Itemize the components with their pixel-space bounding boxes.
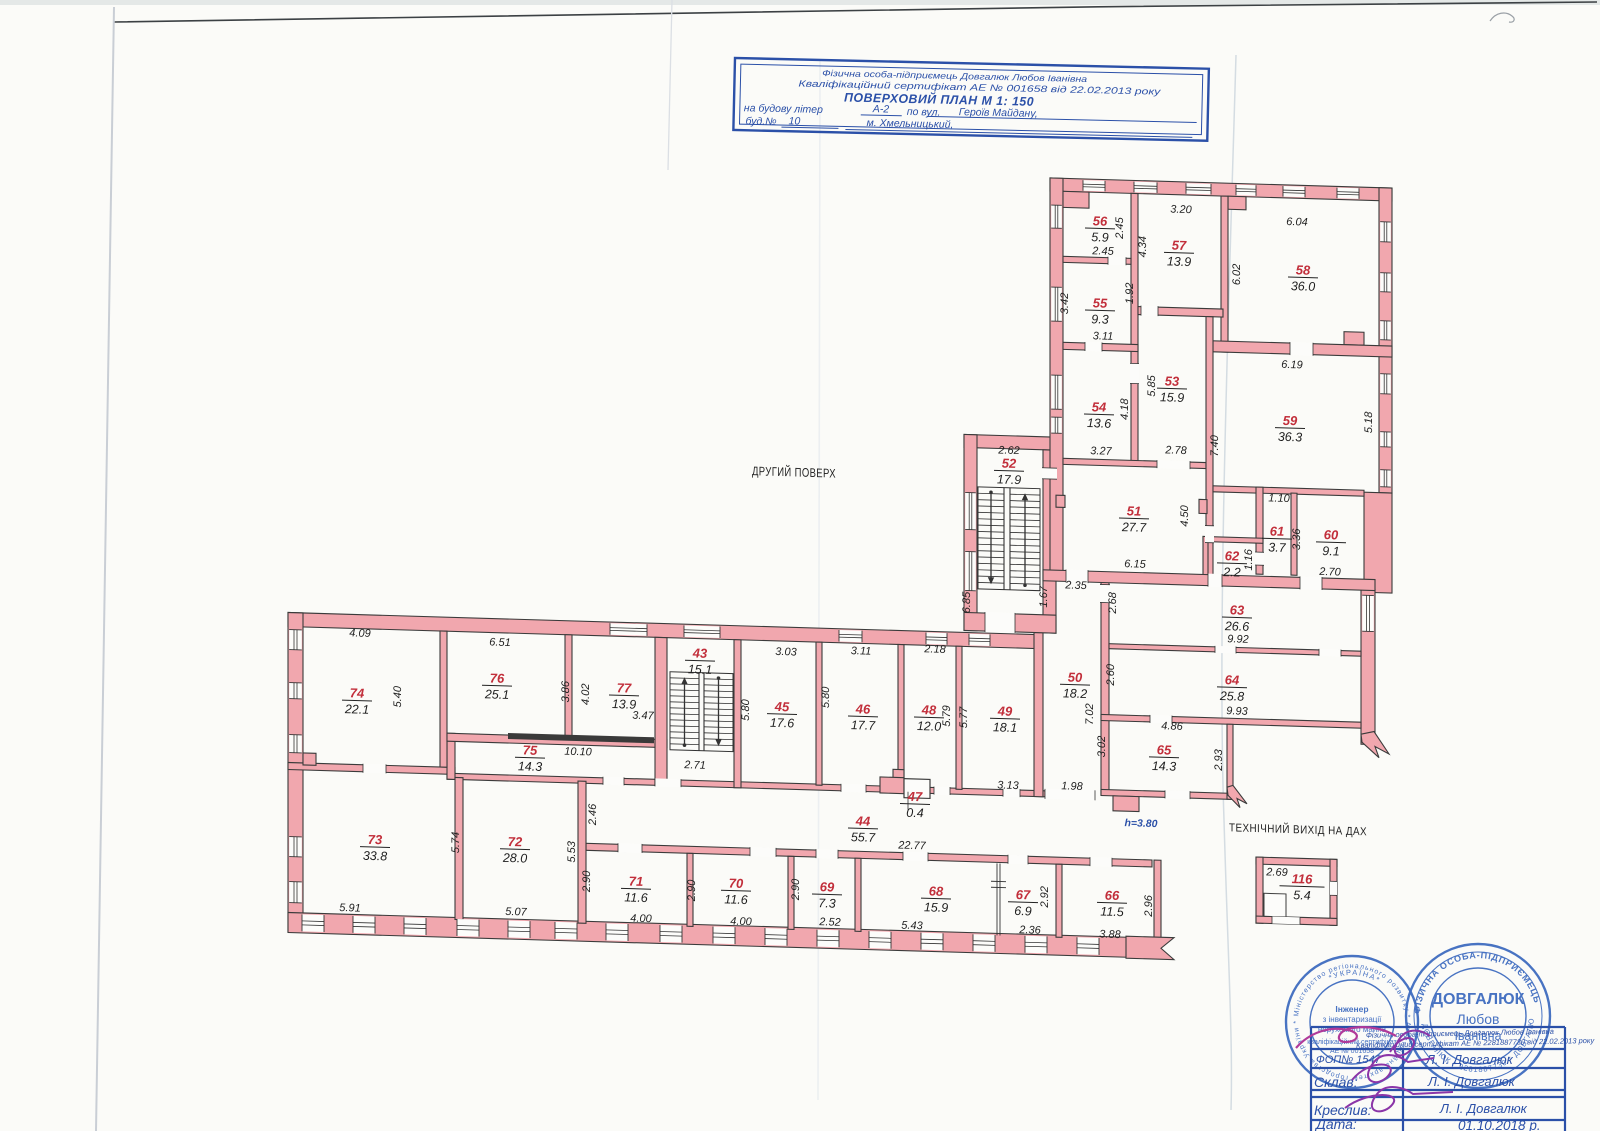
svg-text:0.4: 0.4 (906, 806, 923, 821)
svg-text:7.3: 7.3 (818, 896, 835, 911)
svg-text:17.6: 17.6 (770, 716, 794, 731)
svg-text:2.68: 2.68 (1107, 591, 1119, 615)
svg-text:5.4: 5.4 (1293, 888, 1310, 903)
svg-text:50: 50 (1068, 670, 1083, 685)
svg-text:3.27: 3.27 (1090, 445, 1112, 458)
svg-text:75: 75 (523, 742, 538, 757)
svg-text:6.9: 6.9 (1014, 904, 1031, 919)
svg-text:2.70: 2.70 (1318, 566, 1341, 579)
svg-text:33.8: 33.8 (363, 849, 387, 864)
svg-text:59: 59 (1283, 413, 1298, 428)
svg-text:2.96: 2.96 (1143, 894, 1155, 918)
svg-text:67: 67 (1016, 887, 1031, 902)
svg-text:13.6: 13.6 (1087, 416, 1111, 431)
svg-text:2.90: 2.90 (581, 870, 593, 894)
svg-text:3.42: 3.42 (1059, 293, 1071, 315)
svg-text:10.10: 10.10 (564, 746, 592, 759)
svg-text:63: 63 (1230, 602, 1245, 617)
svg-text:74: 74 (350, 685, 365, 700)
svg-text:Л. І. Довгалюк: Л. І. Довгалюк (1427, 1074, 1516, 1089)
svg-text:55.7: 55.7 (851, 830, 876, 845)
svg-text:3.02: 3.02 (1096, 736, 1108, 758)
svg-text:3.86: 3.86 (560, 680, 572, 703)
svg-text:3.13: 3.13 (997, 779, 1019, 792)
svg-text:Дата:: Дата: (1314, 1116, 1357, 1131)
svg-text:36.3: 36.3 (1278, 430, 1302, 445)
svg-text:2.90: 2.90 (686, 879, 698, 903)
svg-text:3.11: 3.11 (851, 645, 872, 658)
svg-text:57: 57 (1172, 238, 1187, 253)
svg-text:2.2: 2.2 (1222, 565, 1240, 580)
svg-text:11.6: 11.6 (624, 890, 647, 905)
svg-text:9.1: 9.1 (1322, 544, 1339, 559)
svg-text:14.3: 14.3 (1152, 759, 1176, 774)
svg-text:27.7: 27.7 (1121, 520, 1147, 535)
svg-text:15.9: 15.9 (924, 900, 948, 915)
svg-text:5.80: 5.80 (740, 698, 752, 721)
svg-text:2.62: 2.62 (997, 444, 1019, 457)
svg-text:9.93: 9.93 (1226, 705, 1248, 718)
svg-text:68: 68 (929, 883, 944, 898)
svg-text:43: 43 (692, 645, 708, 660)
svg-text:9.92: 9.92 (1227, 633, 1248, 646)
svg-text:2.69: 2.69 (1265, 866, 1287, 879)
svg-text:22.77: 22.77 (897, 839, 926, 852)
svg-text:3.88: 3.88 (1099, 928, 1121, 941)
svg-text:3.36: 3.36 (1291, 528, 1303, 551)
svg-text:13.9: 13.9 (1167, 254, 1191, 269)
svg-text:70: 70 (729, 876, 744, 891)
svg-text:5.40: 5.40 (392, 685, 404, 708)
svg-text:2.45: 2.45 (1091, 245, 1114, 258)
svg-text:4.34: 4.34 (1137, 236, 1149, 258)
svg-text:18.1: 18.1 (993, 720, 1017, 735)
svg-text:1.92: 1.92 (1124, 282, 1136, 304)
svg-text:м. Хмельницький,: м. Хмельницький, (866, 117, 953, 131)
svg-text:17.9: 17.9 (997, 472, 1021, 487)
svg-text:з інвентаризації: з інвентаризації (1323, 1015, 1383, 1024)
svg-text:5.9: 5.9 (1091, 230, 1108, 245)
svg-text:Л. І. Довгалюк: Л. І. Довгалюк (1439, 1101, 1528, 1116)
svg-text:Інженер: Інженер (1335, 1004, 1368, 1014)
svg-text:5.79: 5.79 (941, 705, 953, 727)
svg-text:7.40: 7.40 (1209, 434, 1221, 457)
svg-text:5.91: 5.91 (339, 902, 360, 915)
svg-text:3.03: 3.03 (775, 646, 797, 659)
svg-text:6.19: 6.19 (1281, 359, 1302, 372)
svg-text:2.18: 2.18 (923, 643, 946, 656)
svg-text:Л. І. Довгалюк: Л. І. Довгалюк (1425, 1052, 1514, 1067)
svg-text:4.18: 4.18 (1119, 397, 1131, 420)
svg-text:буд.№: буд.№ (745, 115, 776, 128)
svg-text:77: 77 (617, 680, 632, 695)
svg-text:1.98: 1.98 (1061, 780, 1083, 793)
svg-text:9.3: 9.3 (1091, 312, 1108, 327)
svg-text:2.92: 2.92 (1039, 886, 1051, 909)
svg-text:22.1: 22.1 (344, 702, 369, 717)
svg-text:01.10.2018 р.: 01.10.2018 р. (1458, 1118, 1541, 1131)
svg-text:5.18: 5.18 (1363, 411, 1375, 434)
svg-text:А-2: А-2 (872, 103, 890, 115)
svg-text:25.1: 25.1 (484, 687, 509, 702)
svg-text:2.60: 2.60 (1105, 663, 1117, 687)
svg-text:4.09: 4.09 (349, 627, 370, 640)
svg-text:2.71: 2.71 (683, 759, 705, 772)
svg-text:76: 76 (490, 670, 505, 685)
svg-text:6.51: 6.51 (489, 636, 510, 649)
svg-text:5.77: 5.77 (958, 706, 970, 729)
svg-text:66: 66 (1105, 888, 1120, 903)
svg-text:49: 49 (997, 703, 1013, 718)
svg-text:на будову літер: на будову літер (744, 102, 823, 116)
svg-text:44: 44 (855, 813, 871, 828)
svg-text:46: 46 (855, 701, 871, 716)
svg-text:3.11: 3.11 (1093, 330, 1114, 343)
svg-text:15.9: 15.9 (1160, 390, 1184, 405)
svg-text:61: 61 (1270, 523, 1284, 538)
svg-text:5.53: 5.53 (566, 840, 578, 863)
svg-text:58: 58 (1296, 262, 1311, 277)
svg-text:11.6: 11.6 (724, 892, 747, 907)
svg-text:10: 10 (788, 115, 800, 127)
svg-text:4.86: 4.86 (1161, 720, 1183, 733)
svg-text:64: 64 (1225, 672, 1240, 687)
svg-text:5.80: 5.80 (820, 686, 832, 709)
svg-text:3.47: 3.47 (632, 710, 654, 723)
svg-text:2.93: 2.93 (1213, 748, 1225, 772)
svg-text:2.35: 2.35 (1064, 579, 1087, 592)
svg-text:15.1: 15.1 (688, 662, 712, 677)
svg-text:73: 73 (368, 832, 383, 847)
svg-text:25.8: 25.8 (1219, 689, 1244, 704)
svg-text:18.2: 18.2 (1063, 686, 1087, 701)
svg-text:4.00: 4.00 (730, 916, 752, 929)
svg-text:1.16: 1.16 (1243, 548, 1255, 571)
svg-text:4.02: 4.02 (580, 683, 592, 705)
svg-text:65: 65 (1157, 742, 1172, 757)
svg-text:51: 51 (1127, 503, 1141, 518)
svg-text:5.43: 5.43 (901, 920, 923, 933)
svg-text:6.04: 6.04 (1286, 216, 1307, 229)
svg-text:1.10: 1.10 (1268, 492, 1290, 505)
svg-text:2.90: 2.90 (790, 878, 802, 902)
svg-text:1.67: 1.67 (1038, 585, 1050, 608)
svg-text:7.02: 7.02 (1084, 703, 1096, 725)
svg-text:ДРУГИЙ ПОВЕРХ: ДРУГИЙ ПОВЕРХ (752, 463, 836, 480)
svg-text:69: 69 (820, 879, 835, 894)
svg-text:47: 47 (907, 789, 923, 804)
svg-text:Любов: Любов (1457, 1011, 1500, 1027)
svg-text:52: 52 (1002, 456, 1017, 471)
svg-text:5.74: 5.74 (450, 832, 462, 854)
svg-text:48: 48 (921, 702, 937, 717)
svg-text:2.78: 2.78 (1164, 444, 1187, 457)
svg-text:2.46: 2.46 (587, 803, 599, 827)
svg-text:3.7: 3.7 (1268, 540, 1286, 555)
svg-text:4.00: 4.00 (630, 913, 652, 926)
svg-text:14.3: 14.3 (518, 759, 542, 774)
svg-text:55: 55 (1093, 295, 1108, 310)
svg-text:h=3.80: h=3.80 (1125, 817, 1158, 830)
svg-text:60: 60 (1324, 527, 1339, 542)
svg-text:116: 116 (1292, 871, 1313, 887)
svg-text:Склав:: Склав: (1314, 1074, 1358, 1090)
svg-text:26.6: 26.6 (1224, 619, 1249, 634)
svg-text:4.50: 4.50 (1179, 504, 1191, 527)
svg-text:5.85: 5.85 (1146, 374, 1158, 397)
svg-text:45: 45 (774, 699, 790, 714)
svg-text:2.45: 2.45 (1114, 216, 1126, 240)
svg-text:54: 54 (1092, 399, 1107, 414)
svg-text:12.0: 12.0 (917, 719, 941, 734)
svg-text:11.5: 11.5 (1100, 904, 1123, 919)
svg-text:5.07: 5.07 (505, 906, 527, 919)
svg-text:6.15: 6.15 (1124, 558, 1146, 571)
svg-text:17.7: 17.7 (851, 718, 876, 733)
svg-text:56: 56 (1093, 213, 1108, 228)
svg-text:62: 62 (1225, 548, 1240, 563)
svg-text:3.20: 3.20 (1170, 204, 1192, 217)
svg-text:72: 72 (508, 834, 523, 849)
svg-text:2.52: 2.52 (818, 916, 840, 929)
svg-text:6.85: 6.85 (961, 591, 973, 614)
svg-text:6.02: 6.02 (1231, 264, 1243, 286)
svg-text:2.36: 2.36 (1018, 924, 1041, 937)
svg-text:71: 71 (629, 874, 643, 889)
svg-text:ДОВГАЛЮК: ДОВГАЛЮК (1432, 991, 1525, 1008)
svg-text:28.0: 28.0 (502, 851, 527, 866)
svg-text:53: 53 (1165, 373, 1180, 388)
svg-text:36.0: 36.0 (1291, 279, 1315, 294)
